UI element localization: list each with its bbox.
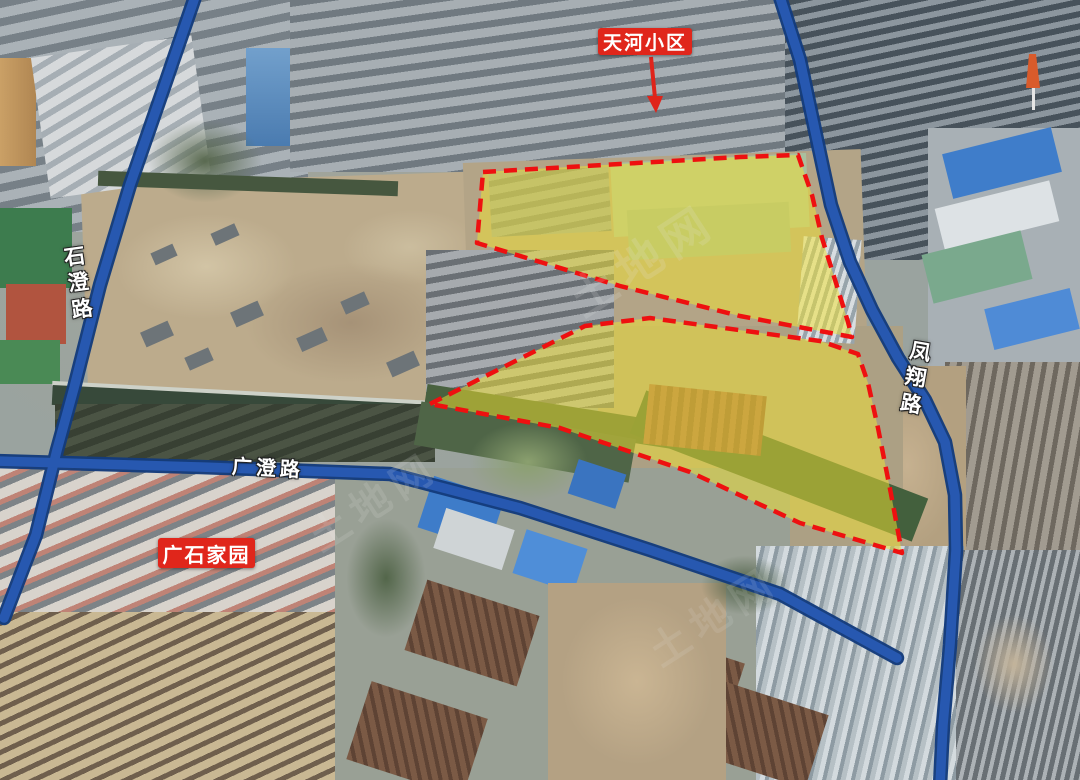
parcel-lower [430, 318, 902, 553]
tianhe-arrowhead [647, 96, 663, 113]
tianhe-leader-arrow [651, 57, 655, 98]
tianhe-label-text: 天河小区 [603, 28, 687, 55]
guangshi-label-text: 广石家园 [163, 539, 251, 568]
road-label-guangcheng: 广澄路 [231, 450, 304, 483]
radio-mast-icon [1026, 54, 1040, 88]
guangshi-label-box: 广石家园 [158, 538, 255, 568]
tianhe-label-box: 天河小区 [598, 28, 692, 55]
aerial-map-image: 土地网 土地网 土地网 天河小区 广石家园 石澄路 凤翔路 广澄路 [0, 0, 1080, 780]
road-line-shicheng [4, 0, 196, 618]
parcel-upper [477, 155, 852, 337]
radio-mast-pole [1032, 88, 1035, 110]
